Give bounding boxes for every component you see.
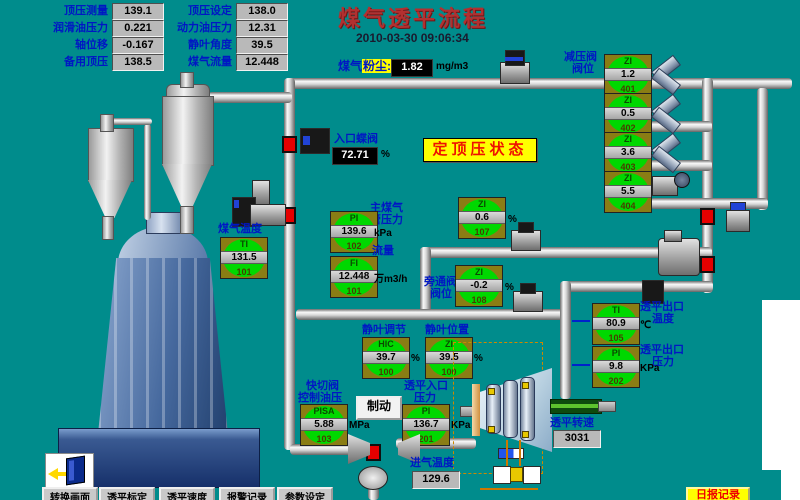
dust-label: 煤气粉尘:	[338, 60, 392, 72]
pump-band	[505, 57, 523, 61]
inlet-pressure-label: 透平入口	[404, 380, 448, 392]
pipe	[288, 78, 792, 89]
inlet-valve-label: 入口蝶阀	[334, 133, 378, 145]
aux-coupling	[510, 467, 523, 482]
gauge-zi404[interactable]: ZI 5.5 404	[604, 171, 652, 213]
actuator-cap	[518, 222, 534, 233]
panel-label: 轴位移	[2, 39, 108, 52]
nav-button-1[interactable]: 转换画面	[42, 487, 98, 500]
gauge-value: 5.88	[301, 418, 347, 431]
gauge-type: ZI	[605, 173, 651, 183]
blast-furnace-top	[146, 212, 184, 234]
gauge-type: ZI	[605, 95, 651, 105]
pipe	[144, 124, 151, 220]
vane-control-unit: %	[411, 353, 420, 364]
gauge-tag: 102	[331, 241, 377, 251]
quick-valve-unit: MPa	[349, 420, 370, 431]
gauge-value: 131.5	[221, 251, 267, 264]
gauge-tag: 101	[221, 267, 267, 277]
outlet-pressure-label: 透平出口	[640, 344, 684, 356]
panel-value: 0.221	[112, 20, 164, 37]
turbine-inlet-strip	[472, 384, 480, 436]
actuator-band	[303, 136, 310, 145]
gauge-vane-control[interactable]: HIC 39.7 100	[362, 337, 410, 379]
gauge-value: 12.448	[331, 270, 377, 283]
inlet-valve-unit: %	[381, 149, 390, 160]
datetime: 2010-03-30 09:06:34	[356, 31, 469, 45]
page-title: 煤气透平流程	[338, 1, 513, 33]
gauge-main-pressure[interactable]: PI 139.6 102	[330, 211, 378, 253]
gauge-value: 80.9	[593, 317, 639, 330]
signal-line	[572, 320, 590, 322]
speed-display: 3031	[553, 430, 601, 448]
panel-label: 顶压测量	[2, 5, 108, 18]
panel-value: 138.5	[112, 54, 164, 71]
screen-edge	[781, 470, 800, 500]
pipe	[208, 92, 292, 103]
bypass-actuator-upper[interactable]	[511, 230, 541, 251]
right-line-valve-1[interactable]	[700, 208, 715, 225]
gauge-tag: 107	[459, 227, 505, 237]
gauge-type: ZI	[605, 134, 651, 144]
gauge-tag: 100	[363, 367, 409, 377]
blast-furnace-body	[98, 258, 228, 434]
cyclone-cone	[88, 180, 132, 218]
gauge-value: -0.2	[456, 279, 502, 292]
gauge-value: 9.8	[593, 360, 639, 373]
dust-catcher-body	[162, 96, 214, 166]
gauge-tag: 101	[331, 286, 377, 296]
gauge-type: TI	[593, 305, 639, 315]
panel-value: -0.167	[112, 37, 164, 54]
gauge-gas-temp[interactable]: TI 131.5 101	[220, 237, 268, 279]
gauge-tag: 404	[605, 201, 651, 211]
dust-catcher-cone	[162, 164, 212, 208]
gauge-value: 1.2	[605, 68, 651, 81]
intake-temp-display: 129.6	[412, 471, 460, 489]
intake-temp-label: 进气温度	[410, 457, 454, 469]
gauge-zi401[interactable]: ZI 1.2 401	[604, 54, 652, 96]
aux-instrument	[493, 466, 511, 484]
three-way-valve-1[interactable]	[650, 58, 680, 92]
gauge-value: 5.5	[605, 185, 651, 198]
gauge-type: ZI	[459, 199, 505, 209]
hmi-screen: 顶压测量 润滑油压力 轴位移 备用顶压 139.1 0.221 -0.167 1…	[0, 0, 800, 500]
panel-value: 12.31	[236, 20, 288, 37]
gauge-type: PI	[403, 406, 449, 416]
bypass-actuator-lower[interactable]	[513, 291, 543, 312]
shaft-end	[598, 401, 616, 412]
pump-cap	[664, 230, 682, 242]
speed-label: 透平转速	[550, 417, 594, 429]
outlet-temp-label: 透平出口	[640, 301, 684, 313]
pipe	[108, 118, 152, 125]
wire	[506, 440, 508, 466]
bearing-mark	[488, 388, 495, 395]
booster-pump[interactable]	[658, 238, 700, 276]
reducer-position-unit: %	[508, 214, 517, 225]
reducer-valve-label: 阀位	[572, 63, 594, 75]
status-banner: 定顶压状态	[423, 138, 537, 162]
bearing-mark	[522, 431, 529, 438]
vane-position-label: 静叶位置	[425, 324, 469, 336]
cyclone-nozzle	[100, 114, 114, 132]
gauge-reducer-position[interactable]: ZI 0.6 107	[458, 197, 506, 239]
gauge-type: PI	[331, 213, 377, 223]
dust-label-a: 煤气	[338, 59, 362, 73]
three-way-valve-3[interactable]	[650, 136, 680, 170]
pipe	[757, 88, 768, 210]
wire	[480, 488, 538, 490]
bearing-mark	[522, 382, 529, 389]
panel-value: 138.0	[236, 3, 288, 20]
aux-instrument	[523, 466, 541, 484]
bypass-label: 阀位	[430, 288, 452, 300]
report-button[interactable]: 日报记录	[686, 487, 750, 500]
dust-catcher-nozzle	[180, 72, 194, 88]
panel-label: 顶压设定	[168, 5, 232, 18]
inlet-valve-display: 72.71	[332, 147, 378, 165]
dust-value-display: 1.82	[391, 59, 433, 77]
exit-arrow-icon	[57, 472, 66, 476]
gauge-type: ZI	[456, 267, 502, 277]
actuator-cap	[520, 283, 536, 294]
dust-unit: mg/m3	[436, 61, 468, 72]
gauge-tag: 105	[593, 333, 639, 343]
right-line-valve-2[interactable]	[700, 256, 715, 273]
pipe	[566, 281, 713, 292]
pipe	[560, 281, 571, 399]
gauge-value: 0.5	[605, 107, 651, 120]
gauge-type: HIC	[363, 339, 409, 349]
wire	[519, 440, 521, 466]
gauge-type: PISA	[301, 406, 347, 416]
outlet-temp-unit: ℃	[640, 320, 651, 331]
gauge-value: 39.7	[363, 351, 409, 364]
gauge-type: PI	[593, 348, 639, 358]
bearing-mark	[488, 426, 495, 433]
quick-valve-label: 快切阀	[306, 380, 339, 392]
flow-unit: 万m3/h	[374, 270, 407, 285]
screen-edge	[762, 300, 800, 470]
panel-label: 动力油压力	[168, 22, 232, 35]
cyclone-leg	[102, 216, 114, 240]
panel-value: 139.1	[112, 3, 164, 20]
three-way-valve-2[interactable]	[650, 97, 680, 131]
gauge-zi402[interactable]: ZI 0.5 402	[604, 93, 652, 135]
nav-button-3[interactable]: 透平速度	[159, 487, 215, 500]
handwheel-icon	[674, 172, 690, 188]
gauge-type: ZI	[605, 56, 651, 66]
gauge-zi403[interactable]: ZI 3.6 403	[604, 132, 652, 174]
generator-shaft	[550, 399, 602, 414]
panel-value: 12.448	[236, 54, 288, 71]
nav-button-4[interactable]: 报警记录	[219, 487, 275, 500]
nav-button-5[interactable]: 参数设定	[277, 487, 333, 500]
gauge-flow[interactable]: FI 12.448 101	[330, 256, 378, 298]
panel-label: 备用顶压	[2, 56, 108, 69]
quick-valve-label: 控制油压	[298, 392, 342, 404]
outlet-pressure-unit: KPa	[640, 363, 659, 374]
gauge-tag: 202	[593, 376, 639, 386]
butterfly-valve[interactable]	[358, 466, 388, 490]
gauge-outlet-temp[interactable]: TI 80.9 105	[592, 303, 640, 345]
signal-line	[572, 364, 590, 366]
panel-label: 煤气流量	[168, 56, 232, 69]
reducer-valve-label: 减压阀	[564, 51, 597, 63]
panel-value: 39.5	[236, 37, 288, 54]
dust-catcher-leg	[180, 206, 194, 234]
gas-temp-label: 煤气温度	[218, 223, 262, 235]
gauge-value: 136.7	[403, 418, 449, 431]
exit-icon[interactable]	[45, 453, 94, 488]
indicator-band	[234, 200, 239, 208]
panel-label: 静叶角度	[168, 39, 232, 52]
gauge-bypass-position[interactable]: ZI -0.2 108	[455, 265, 503, 307]
gauge-type: FI	[331, 258, 377, 268]
gauge-quick-valve-oil[interactable]: PISA 5.88 103	[300, 404, 348, 446]
nav-button-2[interactable]: 透平标定	[99, 487, 155, 500]
gauge-outlet-pressure[interactable]: PI 9.8 202	[592, 346, 640, 388]
gauge-type: TI	[221, 239, 267, 249]
pipe	[284, 78, 295, 450]
vane-control-label: 静叶调节	[362, 324, 406, 336]
gauge-tag: 103	[301, 434, 347, 444]
door-icon	[66, 456, 85, 486]
outlet-temp-label: 温度	[652, 313, 674, 325]
gauge-tag: 108	[456, 295, 502, 305]
dust-label-b: 粉尘:	[362, 59, 392, 73]
cyclone-body	[88, 128, 134, 182]
inlet-butterfly-valve[interactable]	[282, 136, 297, 153]
right-actuator[interactable]	[726, 210, 750, 232]
turbine-rotor-drum	[503, 380, 518, 438]
gauge-value: 0.6	[459, 211, 505, 224]
inlet-pressure-label: 压力	[414, 392, 436, 404]
main-pressure-unit: kPa	[374, 228, 392, 239]
panel-label: 润滑油压力	[2, 22, 108, 35]
brake-button[interactable]: 制动	[356, 396, 402, 420]
bypass-label: 旁通阀	[424, 276, 457, 288]
gauge-value: 139.6	[331, 225, 377, 238]
gauge-value: 3.6	[605, 146, 651, 159]
